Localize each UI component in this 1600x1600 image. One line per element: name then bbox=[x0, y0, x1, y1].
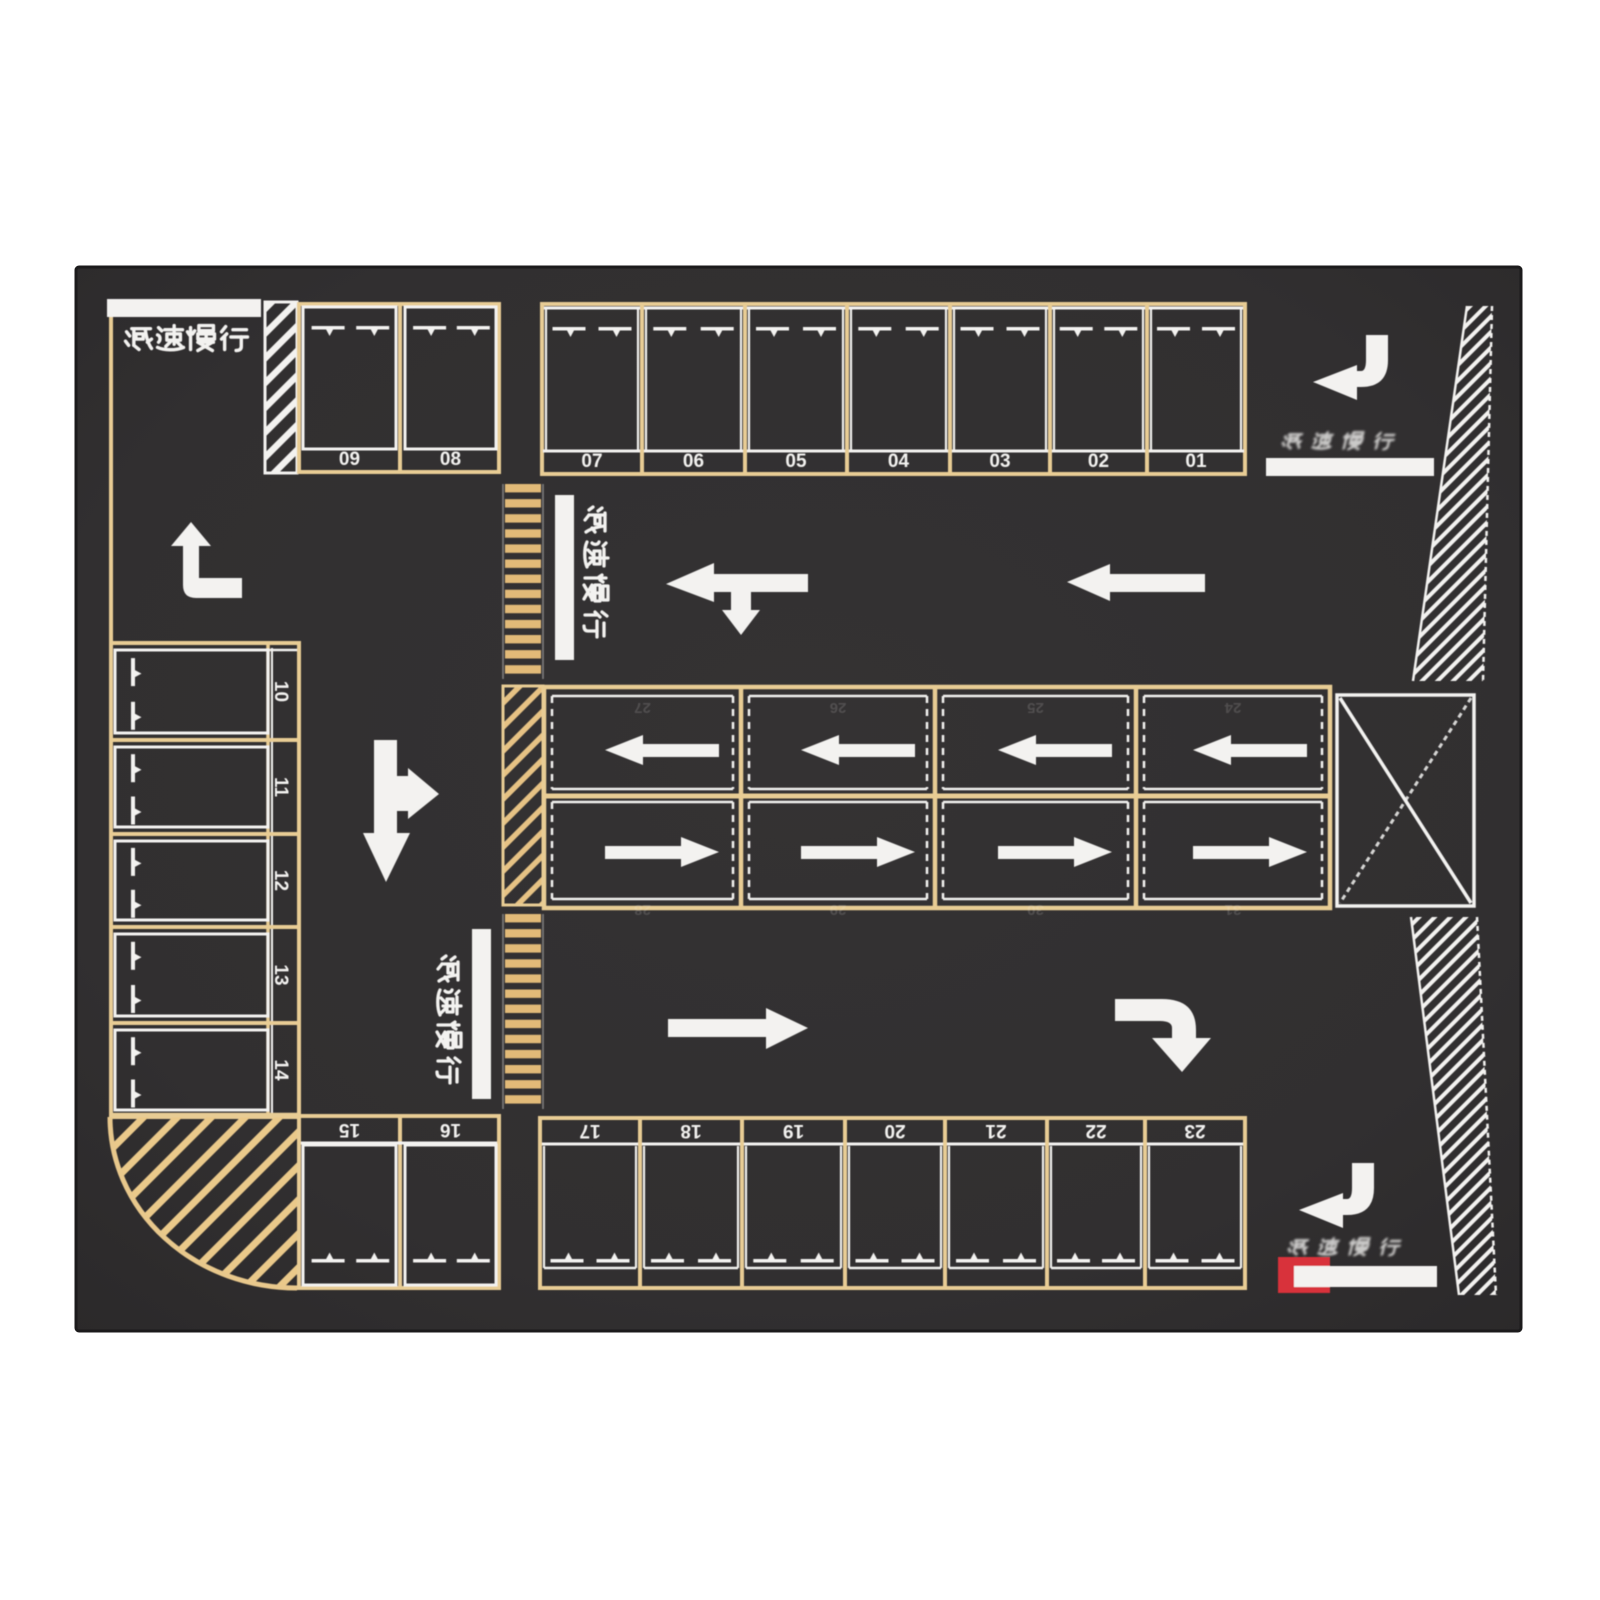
svg-text:23: 23 bbox=[1184, 1120, 1205, 1141]
svg-text:08: 08 bbox=[440, 449, 461, 470]
svg-text:20: 20 bbox=[884, 1120, 905, 1141]
svg-text:12: 12 bbox=[270, 870, 291, 891]
svg-text:07: 07 bbox=[581, 451, 602, 472]
svg-text:24: 24 bbox=[1224, 699, 1241, 716]
svg-text:17: 17 bbox=[579, 1120, 600, 1141]
svg-text:19: 19 bbox=[783, 1120, 804, 1141]
svg-text:22: 22 bbox=[1085, 1120, 1106, 1141]
svg-text:03: 03 bbox=[989, 451, 1010, 472]
svg-text:26: 26 bbox=[830, 699, 847, 716]
svg-text:11: 11 bbox=[270, 777, 291, 798]
svg-text:09: 09 bbox=[339, 449, 360, 470]
svg-text:29: 29 bbox=[830, 901, 847, 918]
svg-text:14: 14 bbox=[270, 1059, 291, 1081]
svg-text:25: 25 bbox=[1027, 699, 1044, 716]
svg-text:21: 21 bbox=[985, 1120, 1007, 1141]
svg-text:01: 01 bbox=[1185, 451, 1207, 472]
svg-text:02: 02 bbox=[1088, 451, 1109, 472]
svg-text:27: 27 bbox=[634, 699, 651, 716]
svg-text:05: 05 bbox=[785, 451, 807, 472]
svg-text:31: 31 bbox=[1225, 901, 1242, 918]
svg-text:13: 13 bbox=[270, 964, 291, 985]
svg-text:18: 18 bbox=[680, 1120, 701, 1141]
svg-text:15: 15 bbox=[339, 1119, 361, 1140]
svg-text:16: 16 bbox=[440, 1119, 461, 1140]
svg-text:28: 28 bbox=[634, 901, 651, 918]
svg-text:04: 04 bbox=[888, 451, 910, 472]
svg-text:30: 30 bbox=[1027, 901, 1044, 918]
svg-text:06: 06 bbox=[683, 451, 704, 472]
svg-text:10: 10 bbox=[270, 681, 291, 702]
